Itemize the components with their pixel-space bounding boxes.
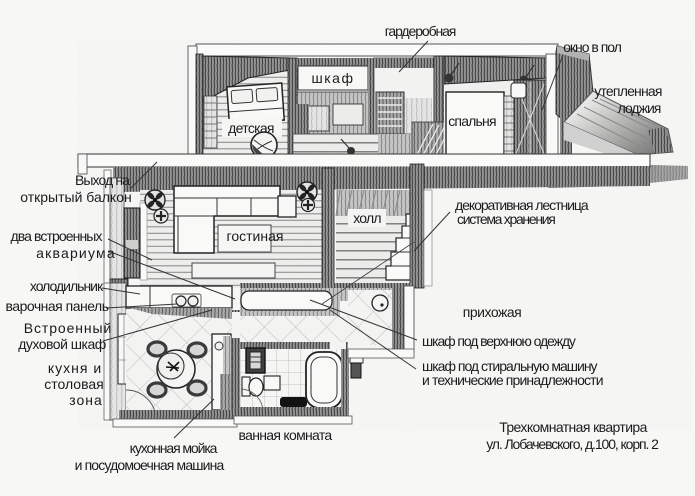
svg-text:кухонная мойка: кухонная мойка [130, 440, 218, 456]
svg-text:ул. Лобачевского, д.100, корп.: ул. Лобачевского, д.100, корп. 2 [486, 436, 659, 452]
svg-text:и посудомоечная машина: и посудомоечная машина [75, 457, 225, 473]
svg-text:гардеробная: гардеробная [385, 23, 456, 39]
